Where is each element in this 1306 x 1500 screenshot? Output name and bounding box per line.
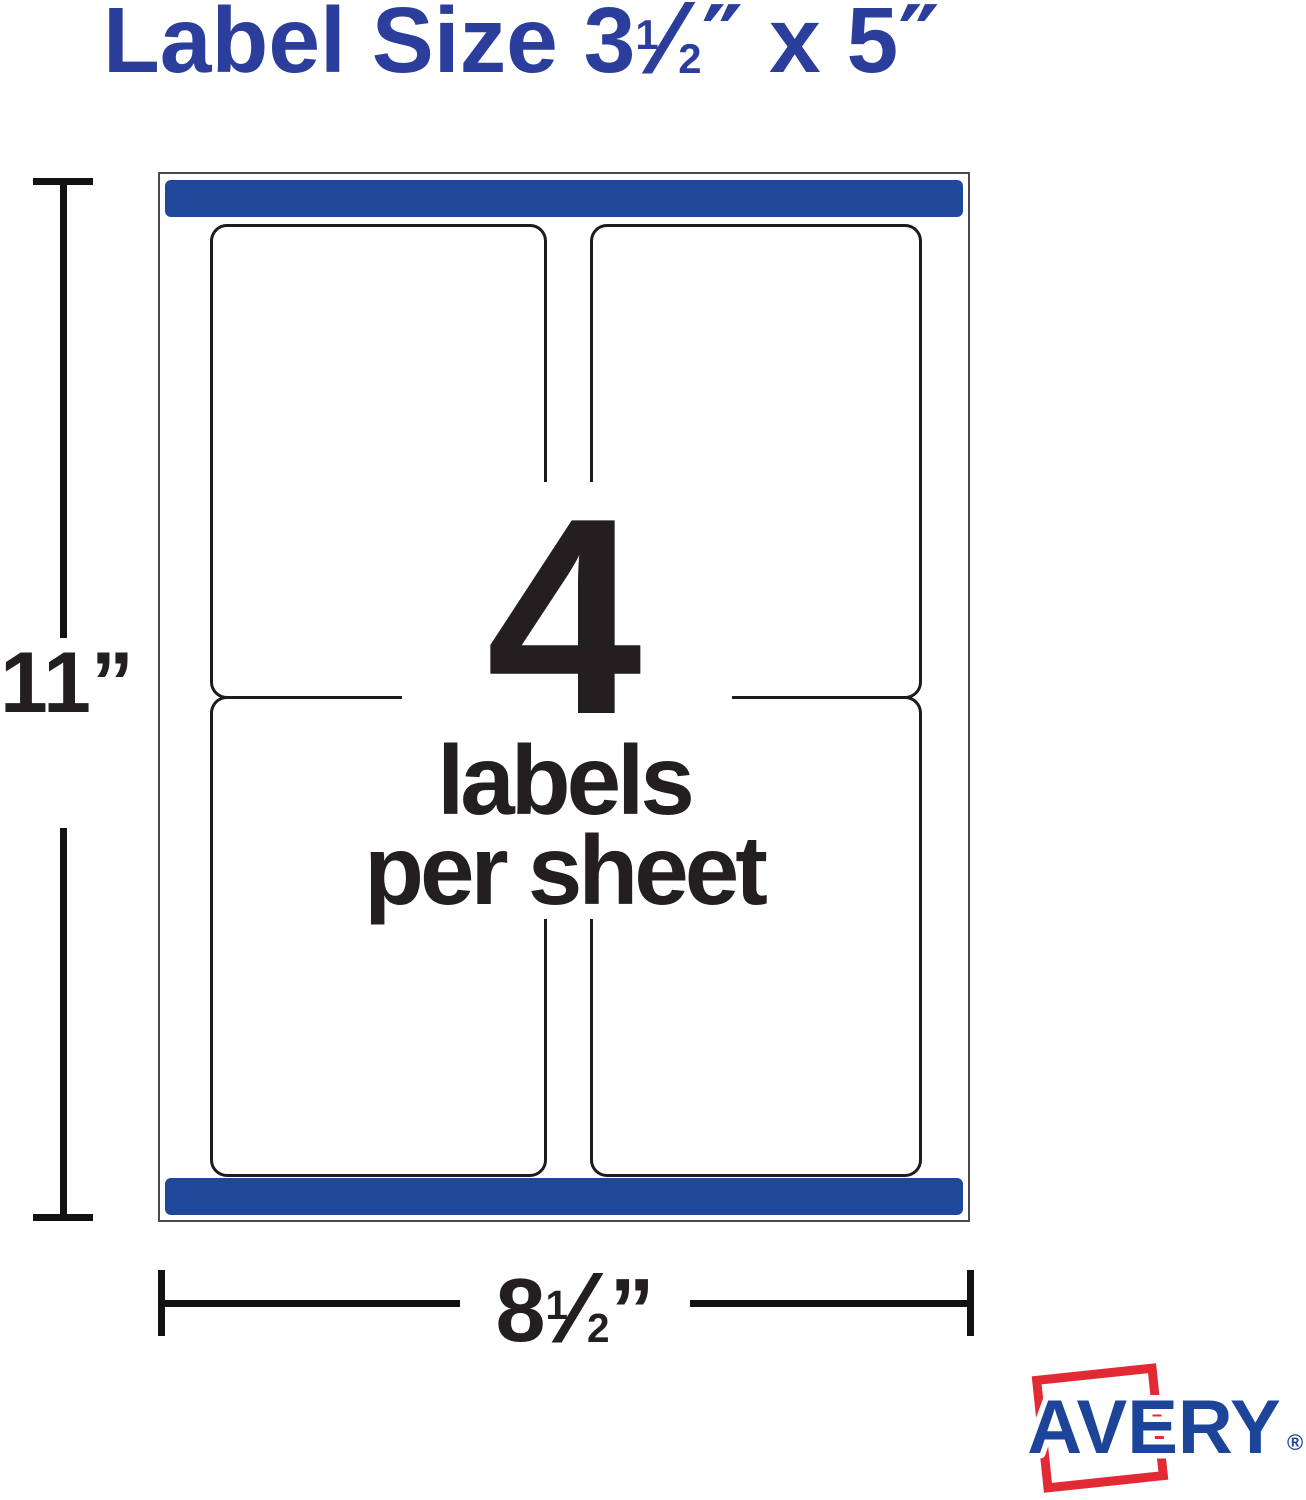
labels-count: 4 — [160, 477, 968, 757]
dimension-cap — [33, 1214, 93, 1221]
sheet-top-margin-bar — [165, 180, 963, 217]
dimension-line — [690, 1300, 972, 1307]
title-fraction: 1⁄2 — [635, 0, 701, 92]
dimension-line — [60, 828, 67, 1214]
product-diagram: Label Size 31⁄2″ x 5″ 4 labelsper sheet … — [0, 0, 1306, 1500]
inch-mark: ″ — [898, 0, 940, 94]
width-fraction: 1⁄2 — [546, 1261, 610, 1361]
dimension-cap — [967, 1270, 974, 1336]
labels-per-sheet-caption: labelsper sheet — [160, 735, 968, 915]
title-text: x 5 — [743, 0, 898, 92]
height-dimension-label: 11” — [0, 640, 120, 726]
dimension-line — [60, 182, 67, 638]
avery-logo: AVERY ® — [1003, 1356, 1306, 1500]
label-sheet: 4 labelsper sheet — [158, 172, 970, 1222]
dimension-line — [162, 1300, 460, 1307]
avery-wordmark: AVERY — [1027, 1385, 1280, 1470]
width-dimension-label: 81⁄2” — [460, 1265, 690, 1372]
page-title: Label Size 31⁄2″ x 5″ — [103, 0, 940, 108]
inch-mark: ″ — [702, 0, 744, 94]
sheet-bottom-margin-bar — [165, 1178, 963, 1215]
title-text: Label Size 3 — [103, 0, 635, 92]
registered-mark: ® — [1287, 1430, 1303, 1455]
